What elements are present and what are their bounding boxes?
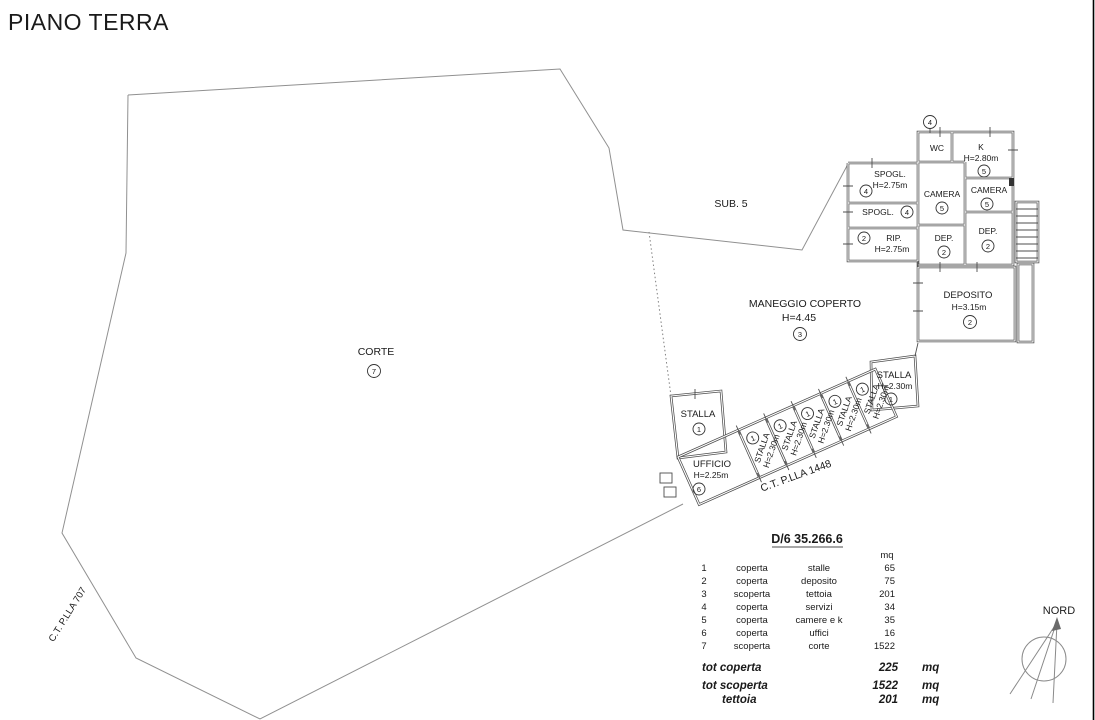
stall-4-num: 1 (831, 397, 838, 407)
camera1-label: CAMERA (924, 189, 961, 199)
maneggio-num: 3 (798, 330, 802, 339)
ufficio-height: H=2.25m (694, 470, 729, 480)
row-cover: scoperta (734, 589, 771, 600)
row-name: stalle (808, 563, 830, 574)
total-value: 1522 (872, 680, 898, 692)
sub5-label: SUB. 5 (714, 198, 747, 210)
row-n: 5 (701, 615, 706, 626)
row-n: 2 (701, 576, 706, 587)
stalla-end-num: 1 (889, 395, 893, 404)
total-unit: mq (922, 680, 939, 692)
stall-3-num: 1 (804, 409, 811, 419)
total-label: tot scoperta (702, 680, 768, 692)
wall-fill-detail (1009, 178, 1014, 186)
legend-title: D/6 35.266.6 (771, 532, 843, 546)
k-height: H=2.80m (964, 153, 999, 163)
stall-5-num: 1 (859, 385, 866, 395)
maneggio-height: H=4.45 (782, 312, 816, 324)
row-n: 6 (701, 628, 706, 639)
row-mq: 75 (884, 576, 895, 587)
total-unit: mq (922, 662, 939, 674)
row-mq: 16 (884, 628, 895, 639)
total-unit: mq (922, 694, 939, 706)
window-door-ticks (695, 127, 1018, 399)
pillar-left-1 (660, 473, 672, 483)
deposito-height: H=3.15m (952, 302, 987, 312)
row-n: 1 (701, 563, 706, 574)
camera2-label: CAMERA (971, 185, 1008, 195)
staircase-treads (1016, 209, 1038, 258)
page-title: PIANO TERRA (8, 9, 169, 35)
rip-label: RIP. (886, 233, 901, 243)
stall-2-num: 1 (777, 421, 784, 431)
row-name: tettoia (806, 589, 833, 600)
row-name: uffici (809, 628, 828, 639)
ufficio-label: UFFICIO (693, 459, 731, 470)
deposito-num: 2 (968, 318, 972, 327)
parcel-707-label: C.T. P.LLA 707 (47, 585, 89, 644)
row-mq: 34 (884, 602, 895, 613)
dep2-label: DEP. (979, 226, 998, 236)
parcel-boundary (62, 69, 848, 719)
k-label: K (978, 142, 984, 152)
camera1-num: 5 (940, 204, 944, 213)
row-mq: 201 (879, 589, 895, 600)
total-value: 201 (878, 694, 898, 706)
dep1-num: 2 (942, 248, 946, 257)
dep1-label: DEP. (935, 233, 954, 243)
row-name: corte (808, 641, 829, 652)
k-num: 5 (982, 167, 986, 176)
rip-num: 2 (862, 234, 866, 243)
rip-height: H=2.75m (875, 244, 910, 254)
total-value: 225 (878, 662, 899, 674)
stalla-corner-label: STALLA (681, 409, 716, 420)
row-mq: 35 (884, 615, 895, 626)
corte-num: 7 (372, 367, 376, 376)
spogl2-num: 4 (905, 208, 909, 217)
legend-unit-header: mq (880, 550, 893, 561)
maneggio-label: MANEGGIO COPERTO (749, 298, 861, 310)
camera2-num: 5 (985, 200, 989, 209)
pillar-left-2 (664, 487, 676, 497)
stalla-corner-num: 1 (697, 425, 701, 434)
floor-plan-svg: 1 STALLAH=2.30m 1 STALLAH=2.30m 1 STALLA… (0, 0, 1095, 720)
row-cover: coperta (736, 628, 768, 639)
deposito-label: DEPOSITO (944, 290, 993, 301)
row-cover: coperta (736, 563, 768, 574)
row-n: 7 (701, 641, 706, 652)
floor-plan-page: 1 STALLAH=2.30m 1 STALLAH=2.30m 1 STALLA… (0, 0, 1095, 720)
spogl1-height: H=2.75m (873, 180, 908, 190)
row-cover: coperta (736, 615, 768, 626)
stalla-end-label: STALLA (877, 370, 912, 381)
compass-needles (1010, 623, 1057, 703)
spogl2-label: SPOGL. (862, 207, 894, 217)
corte-label: CORTE (358, 346, 395, 358)
row-n: 4 (701, 602, 706, 613)
stall-strip: 1 STALLAH=2.30m 1 STALLAH=2.30m 1 STALLA… (676, 362, 905, 509)
north-compass: NORD (1010, 605, 1075, 703)
north-label: NORD (1043, 605, 1075, 617)
top-num: 4 (928, 118, 932, 127)
dep2-num: 2 (986, 242, 990, 251)
legend-totals: tot coperta 225 mq tot scoperta 1522 mq … (702, 662, 939, 706)
spogl1-label: SPOGL. (874, 169, 906, 179)
row-n: 3 (701, 589, 706, 600)
spogl1-num: 4 (864, 187, 868, 196)
total-label: tot coperta (702, 662, 762, 674)
stalla-end-height: H=2.30m (878, 381, 913, 391)
corte-maneggio-divider (649, 232, 671, 396)
compass-arrowhead-icon (1052, 617, 1061, 631)
row-cover: coperta (736, 576, 768, 587)
row-cover: coperta (736, 602, 768, 613)
stall-1-num: 1 (749, 433, 756, 443)
total-label: tettoia (722, 694, 757, 706)
row-name: deposito (801, 576, 837, 587)
ufficio-num: 6 (697, 485, 701, 494)
legend-rows: 1copertastalle65 2copertadeposito75 3sco… (701, 563, 895, 652)
wc-label: WC (930, 143, 944, 153)
row-mq: 1522 (874, 641, 895, 652)
row-name: servizi (806, 602, 833, 613)
row-name: camere e k (796, 615, 843, 626)
row-mq: 65 (884, 563, 895, 574)
row-cover: scoperta (734, 641, 771, 652)
